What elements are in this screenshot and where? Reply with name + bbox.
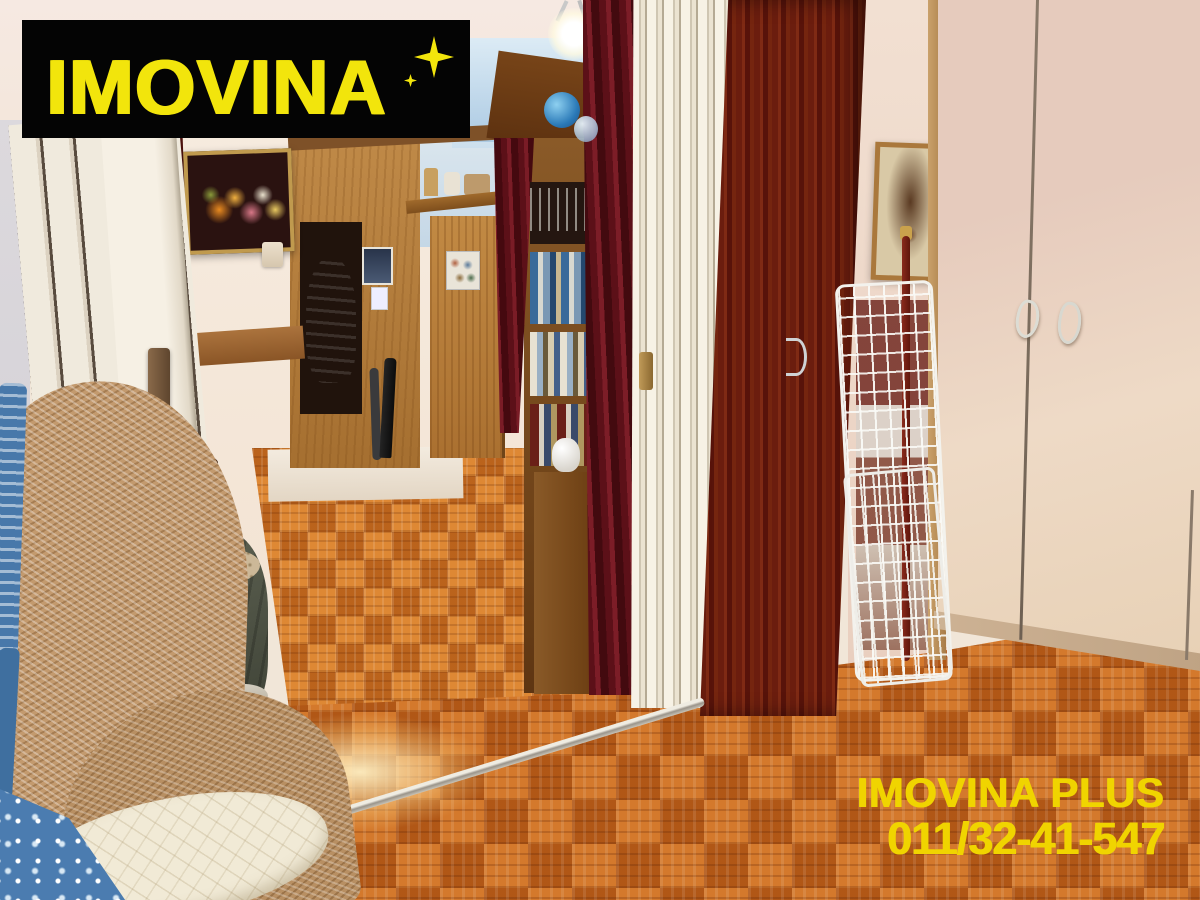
white-figurine	[552, 438, 580, 472]
cream-wardrobe	[938, 0, 1200, 690]
wall-cards	[371, 287, 388, 310]
accordion-door-handle	[639, 352, 653, 390]
wall-poster	[362, 247, 393, 285]
mahogany-door-handle	[786, 338, 807, 376]
agency-name: IMOVINA PLUS	[856, 770, 1164, 815]
light-switch	[262, 242, 283, 267]
phone-number: 011/32-41-547	[856, 815, 1164, 864]
contact-overlay: IMOVINA PLUS 011/32-41-547	[856, 770, 1164, 864]
still-life-picture	[183, 148, 295, 255]
book-row	[530, 332, 594, 396]
hanging-jacket	[306, 258, 356, 383]
drying-rack-lower	[843, 466, 953, 687]
listing-photo: IMOVINA IMOVINA PLUS 011/32-41-547	[0, 0, 1200, 900]
sparkle-icon	[414, 36, 454, 78]
glass-ball	[574, 116, 598, 142]
sparkle-icon	[404, 74, 417, 87]
brand-text: IMOVINA	[46, 42, 387, 133]
shelf-vase	[424, 168, 438, 196]
brand-banner: IMOVINA	[22, 20, 470, 138]
shelf-jug	[444, 172, 460, 195]
door-poster	[446, 251, 480, 290]
